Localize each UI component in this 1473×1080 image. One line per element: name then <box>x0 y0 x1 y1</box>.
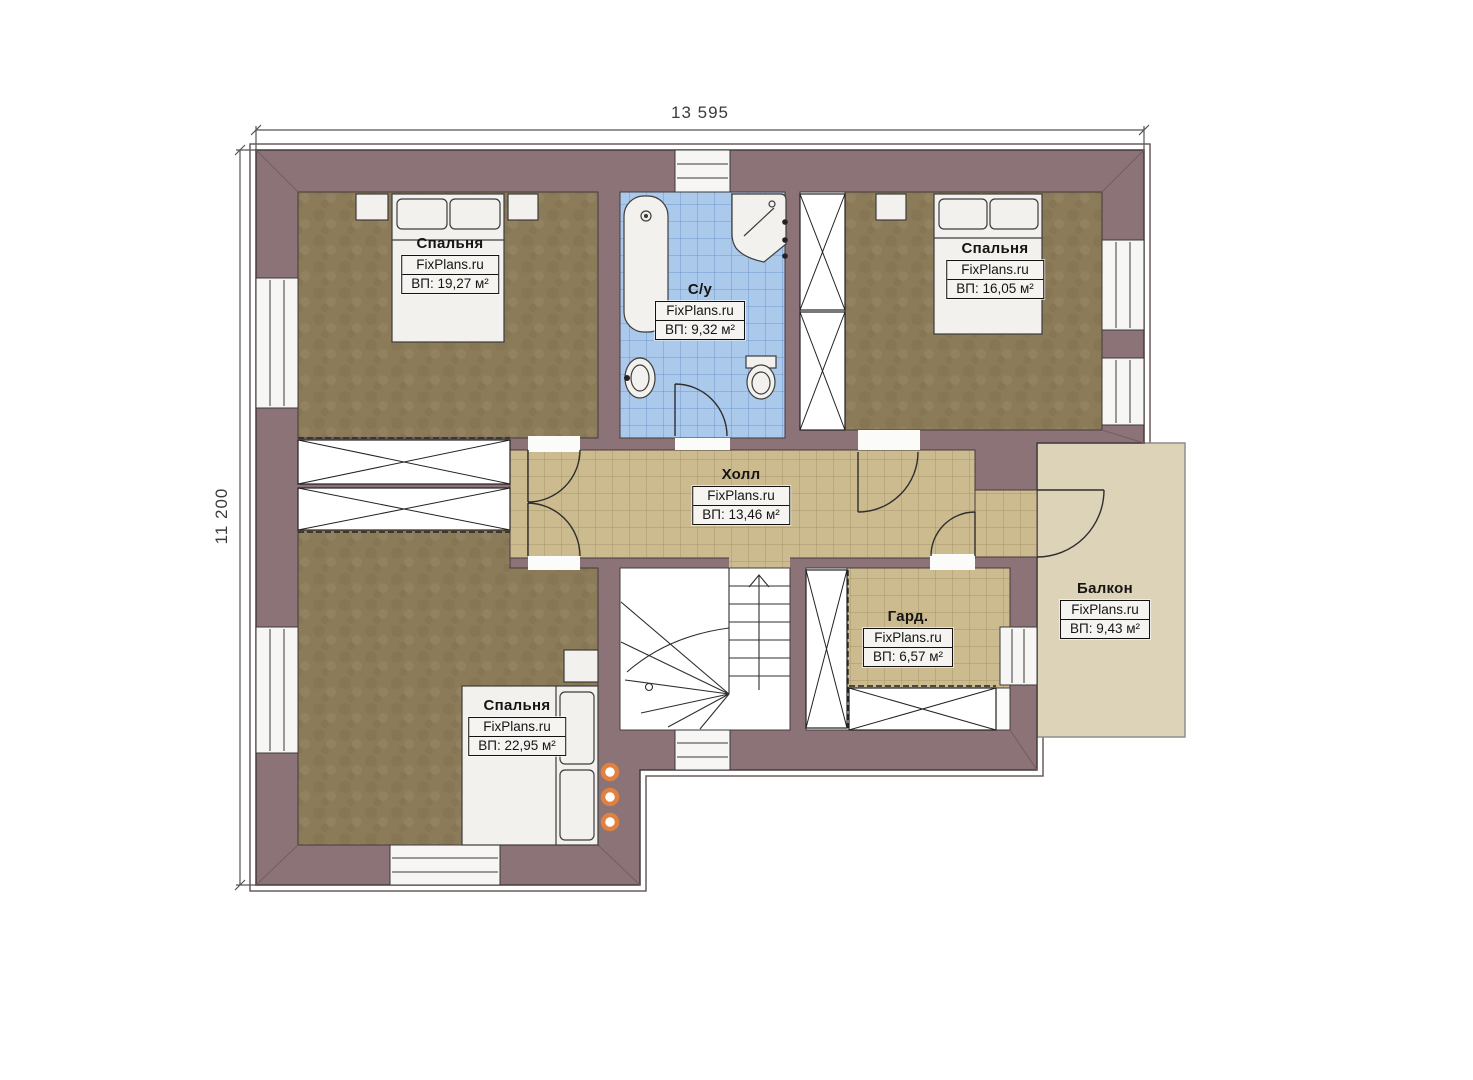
pillow <box>397 199 447 229</box>
room-name: Холл <box>722 466 761 483</box>
sink <box>624 358 655 398</box>
area-text: ВП: 6,57 м² <box>864 648 952 666</box>
area-text: ВП: 16,05 м² <box>947 280 1043 298</box>
hall-balcony-corridor <box>975 490 1037 557</box>
window <box>390 845 500 885</box>
brand-text: FixPlans.ru <box>656 302 744 321</box>
window <box>1102 358 1144 425</box>
brand-text: FixPlans.ru <box>947 261 1043 280</box>
nightstand <box>564 650 598 682</box>
room-info-box: FixPlans.ru ВП: 9,43 м² <box>1060 600 1150 639</box>
wall-lights <box>603 765 617 829</box>
room-info-box: FixPlans.ru ВП: 9,32 м² <box>655 301 745 340</box>
stair-newel-post <box>646 684 653 691</box>
pillow <box>939 199 987 229</box>
window <box>1000 627 1037 685</box>
spotlight-icon <box>603 765 617 779</box>
room-label-bedroom-bottom-left: Спальня FixPlans.ru ВП: 22,95 м² <box>468 697 566 756</box>
area-text: ВП: 19,27 м² <box>402 275 498 293</box>
brand-text: FixPlans.ru <box>402 256 498 275</box>
spotlight-icon <box>603 790 617 804</box>
room-info-box: FixPlans.ru ВП: 6,57 м² <box>863 628 953 667</box>
window <box>1102 240 1144 330</box>
brand-text: FixPlans.ru <box>469 718 565 737</box>
nightstand <box>356 194 388 220</box>
hall-stair-opening <box>729 556 790 569</box>
pillow <box>560 770 594 840</box>
dimension-line-top <box>251 125 1149 150</box>
door-gap <box>930 554 975 570</box>
room-info-box: FixPlans.ru ВП: 19,27 м² <box>401 255 499 294</box>
staircase-area <box>620 568 790 730</box>
room-label-wardrobe: Гард. FixPlans.ru ВП: 6,57 м² <box>863 608 953 667</box>
window <box>256 278 298 408</box>
dimension-height-label: 11 200 <box>212 481 232 552</box>
door-gap <box>675 438 730 450</box>
window <box>256 627 298 753</box>
nightstand <box>876 194 906 220</box>
door-gap <box>528 436 580 452</box>
area-text: ВП: 13,46 м² <box>693 506 789 524</box>
room-name: Спальня <box>962 240 1029 257</box>
toilet <box>746 356 776 399</box>
dimension-line-left <box>235 145 258 890</box>
area-text: ВП: 22,95 м² <box>469 737 565 755</box>
pillow <box>990 199 1038 229</box>
room-name: С/у <box>688 281 712 298</box>
room-name: Гард. <box>888 608 929 625</box>
door-gap <box>528 556 580 570</box>
room-label-bedroom-top-right: Спальня FixPlans.ru ВП: 16,05 м² <box>946 240 1044 299</box>
nightstand <box>508 194 538 220</box>
window <box>675 730 730 770</box>
room-name: Спальня <box>417 235 484 252</box>
room-info-box: FixPlans.ru ВП: 13,46 м² <box>692 486 790 525</box>
room-label-balcony: Балкон FixPlans.ru ВП: 9,43 м² <box>1060 580 1150 639</box>
door-gap <box>858 430 920 450</box>
brand-text: FixPlans.ru <box>864 629 952 648</box>
room-info-box: FixPlans.ru ВП: 16,05 м² <box>946 260 1044 299</box>
pillow <box>450 199 500 229</box>
area-text: ВП: 9,43 м² <box>1061 620 1149 638</box>
floor-plan-canvas: 13 595 11 200 Спальня FixPlans.ru ВП: 19… <box>0 0 1473 1080</box>
brand-text: FixPlans.ru <box>1061 601 1149 620</box>
room-name: Спальня <box>484 697 551 714</box>
room-name: Балкон <box>1077 580 1133 597</box>
window <box>675 150 730 192</box>
spotlight-icon <box>603 815 617 829</box>
room-label-hall: Холл FixPlans.ru ВП: 13,46 м² <box>692 466 790 525</box>
room-label-bathroom: С/у FixPlans.ru ВП: 9,32 м² <box>655 281 745 340</box>
area-text: ВП: 9,32 м² <box>656 321 744 339</box>
brand-text: FixPlans.ru <box>693 487 789 506</box>
room-info-box: FixPlans.ru ВП: 22,95 м² <box>468 717 566 756</box>
room-label-bedroom-top-left: Спальня FixPlans.ru ВП: 19,27 м² <box>401 235 499 294</box>
dimension-width-label: 13 595 <box>664 103 736 123</box>
